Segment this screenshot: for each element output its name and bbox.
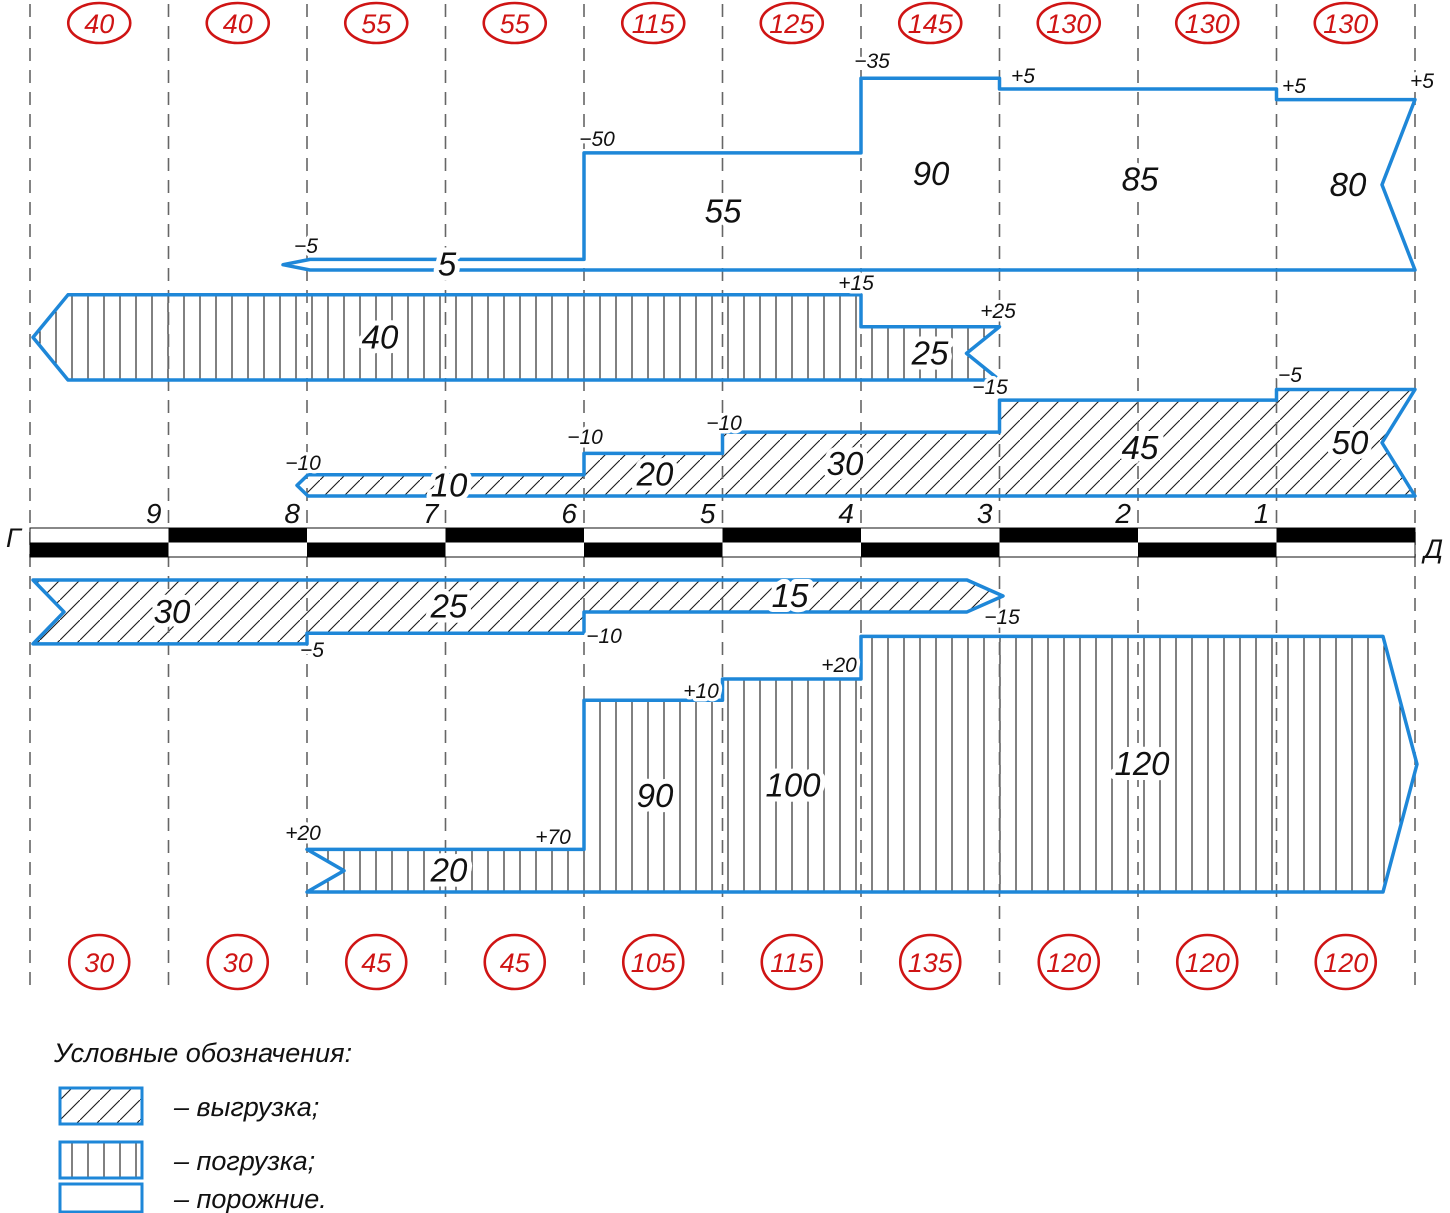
band-value-empty-top: 85: [1122, 160, 1159, 197]
axis-bar-segment: [1138, 543, 1277, 558]
band-value-empty-top: 55: [705, 192, 742, 229]
interval-total-bottom-value: 45: [500, 948, 531, 978]
interval-total-top-value: 125: [769, 9, 815, 39]
band-value-unload-top: 45: [1122, 429, 1159, 466]
pickup-dropoff-label: −5: [1278, 364, 1302, 387]
station-label-1: 1: [1254, 498, 1270, 529]
cargo-flow-diagram-canvas: ГД987654321555908580−5−50−35+5+5+54025+1…: [0, 0, 1450, 1213]
legend-swatch-loading: [60, 1142, 142, 1178]
pickup-dropoff-label: +10: [683, 680, 719, 703]
pickup-dropoff-label: +20: [285, 822, 321, 845]
interval-total-top-value: 55: [500, 9, 531, 39]
band-fill-empty-top: [283, 78, 1415, 270]
cargo-flow-diagram-page: ГД987654321555908580−5−50−35+5+5+54025+1…: [0, 0, 1450, 1213]
interval-total-top-value: 115: [632, 9, 676, 39]
band-value-load-bottom: 120: [1114, 745, 1170, 782]
axis-bar-segment: [1000, 528, 1139, 543]
interval-total-top-value: 40: [84, 9, 114, 39]
band-value-unload-bottom: 30: [154, 593, 191, 630]
legend-title: Условные обозначения:: [53, 1038, 352, 1068]
legend-label-loading: – погрузка;: [173, 1146, 315, 1176]
station-label-8: 8: [284, 498, 300, 529]
axis-bar-segment: [307, 543, 446, 558]
axis-bar-segment: [446, 528, 585, 543]
band-value-load-bottom: 90: [637, 777, 674, 814]
pickup-dropoff-label: +5: [1282, 75, 1306, 98]
interval-total-bottom-value: 120: [1323, 948, 1368, 978]
pickup-dropoff-label: −10: [567, 426, 603, 449]
band-value-unload-top: 10: [431, 466, 468, 503]
pickup-dropoff-label: −10: [586, 625, 622, 648]
band-value-load-bottom: 100: [765, 767, 821, 804]
interval-total-top-value: 55: [361, 9, 392, 39]
pickup-dropoff-label: +70: [535, 826, 571, 849]
interval-total-top-value: 130: [1323, 9, 1368, 39]
pickup-dropoff-label: +5: [1410, 70, 1434, 93]
pickup-dropoff-label: +20: [821, 654, 857, 677]
band-value-unload-top: 30: [827, 445, 864, 482]
station-label-2: 2: [1114, 498, 1131, 529]
legend-label-unloading: – выгрузка;: [173, 1092, 319, 1122]
interval-total-bottom-value: 120: [1046, 948, 1091, 978]
axis-bar-segment: [723, 528, 862, 543]
interval-total-bottom-value: 105: [631, 948, 677, 978]
interval-total-bottom-value: 45: [361, 948, 392, 978]
legend-swatch-unloading: [60, 1088, 142, 1124]
axis-bar-segment: [861, 543, 1000, 558]
station-label-5: 5: [700, 498, 716, 529]
interval-total-top-value: 130: [1046, 9, 1091, 39]
pickup-dropoff-label: −10: [285, 452, 321, 475]
band-value-load-top: 40: [362, 318, 399, 355]
pickup-dropoff-label: −35: [854, 50, 890, 73]
pickup-dropoff-label: +15: [838, 272, 874, 295]
axis-bar-segment: [584, 543, 723, 558]
band-value-empty-top: 5: [438, 246, 457, 283]
pickup-dropoff-label: +25: [980, 300, 1016, 323]
interval-total-bottom-value: 30: [84, 948, 114, 978]
legend: Условные обозначения: – выгрузка; – погр…: [53, 1038, 352, 1213]
pickup-dropoff-label: −50: [579, 128, 615, 151]
band-value-unload-bottom: 15: [772, 577, 809, 614]
interval-total-top-value: 40: [223, 9, 253, 39]
interval-total-bottom-value: 115: [770, 948, 814, 978]
band-value-empty-top: 90: [913, 155, 950, 192]
axis-bar-segment: [1277, 528, 1416, 543]
station-label-9: 9: [146, 498, 162, 529]
station-label-4: 4: [838, 498, 854, 529]
interval-total-top-value: 130: [1185, 9, 1230, 39]
pickup-dropoff-label: −10: [706, 412, 742, 435]
axis-bar-segment: [169, 528, 308, 543]
pickup-dropoff-label: −5: [300, 639, 324, 662]
legend-label-empty: – порожние.: [173, 1184, 327, 1213]
axis-bar-segment: [30, 543, 169, 558]
pickup-dropoff-label: −15: [984, 606, 1020, 629]
legend-swatch-empty: [60, 1184, 142, 1212]
band-value-load-bottom: 20: [430, 852, 468, 889]
terminal-label-right: Д: [1421, 534, 1443, 564]
band-value-unload-top: 20: [636, 456, 674, 493]
band-value-unload-top: 50: [1332, 424, 1369, 461]
pickup-dropoff-label: −5: [294, 235, 318, 258]
station-label-6: 6: [561, 498, 577, 529]
pickup-dropoff-label: −15: [972, 376, 1008, 399]
pickup-dropoff-label: +5: [1011, 65, 1035, 88]
interval-total-bottom-value: 120: [1185, 948, 1230, 978]
interval-total-bottom-value: 135: [908, 948, 954, 978]
railway-axis: [30, 528, 1415, 557]
band-value-empty-top: 80: [1330, 166, 1367, 203]
terminal-label-left: Г: [6, 523, 23, 553]
interval-total-top-value: 145: [908, 9, 954, 39]
interval-total-bottom-value: 30: [223, 948, 253, 978]
band-value-load-top: 25: [911, 334, 949, 371]
band-fill-load-top: [33, 295, 1000, 380]
band-value-unload-bottom: 25: [430, 588, 468, 625]
station-label-3: 3: [977, 498, 993, 529]
